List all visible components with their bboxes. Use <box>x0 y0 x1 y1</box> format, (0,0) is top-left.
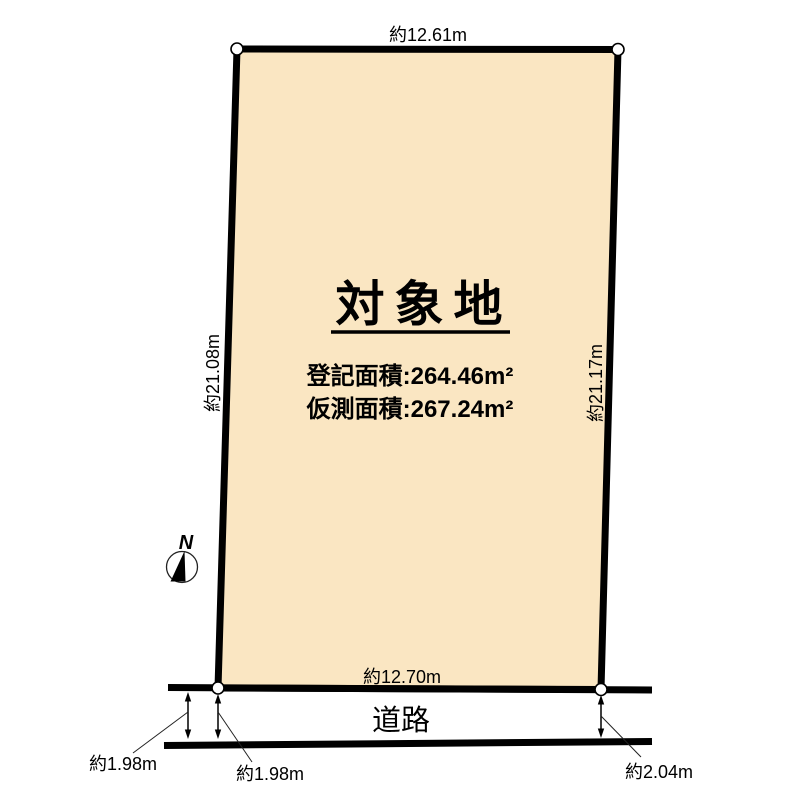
plot-title: 対象地 <box>335 278 512 332</box>
leader-left-inner <box>218 712 252 762</box>
surveyed-area-label: 仮測面積:267.24m² <box>306 395 514 423</box>
north-label: N <box>179 532 194 554</box>
setback-label-right: 約2.04m <box>625 762 693 782</box>
dimension-right: 約21.17m <box>586 344 606 422</box>
registered-area-label: 登記面積:264.46m² <box>306 362 514 390</box>
dimension-top: 約12.61m <box>389 25 467 45</box>
compass-needle-icon <box>171 551 186 582</box>
site-plan-diagram: N 約12.61m 約21.08m 約21.17m 約12.70m 対象地 登記… <box>0 0 801 801</box>
dimension-bottom: 約12.70m <box>363 667 441 687</box>
corner-marker-top-right <box>612 44 624 56</box>
leader-right <box>601 716 641 757</box>
road-label: 道路 <box>372 704 430 737</box>
setback-arrow-left-outer <box>185 692 191 739</box>
setback-arrow-left-inner <box>215 694 221 739</box>
setback-label-left-inner: 約1.98m <box>236 764 304 784</box>
corner-marker-bottom-right <box>595 684 607 696</box>
setback-label-left-outer: 約1.98m <box>89 754 157 774</box>
corner-marker-bottom-left <box>212 682 224 694</box>
corner-marker-top-left <box>231 43 243 55</box>
dimension-left: 約21.08m <box>203 334 223 412</box>
road-edge-near <box>168 688 652 691</box>
north-compass: N <box>167 532 198 583</box>
road-edge-far <box>164 742 652 746</box>
